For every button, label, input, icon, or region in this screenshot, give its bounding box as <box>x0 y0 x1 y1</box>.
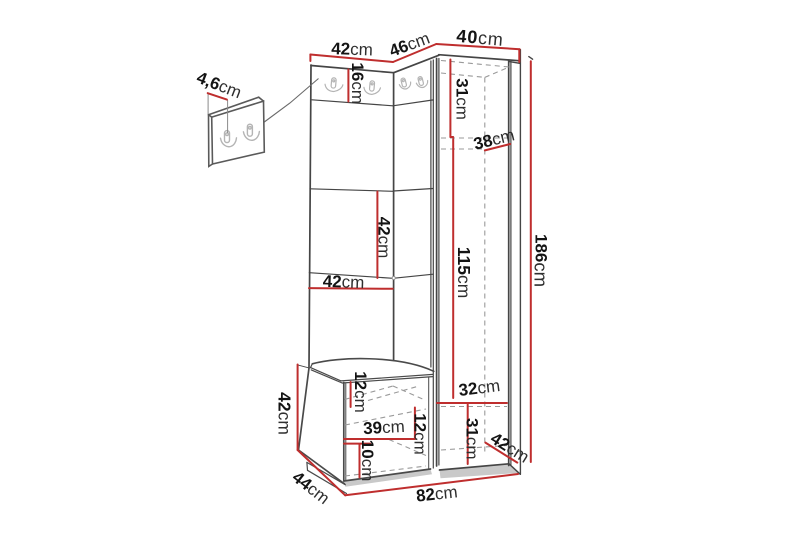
svg-text:115cm: 115cm <box>454 247 474 299</box>
svg-text:10cm: 10cm <box>357 440 376 482</box>
svg-text:12cm: 12cm <box>351 371 370 413</box>
svg-text:16cm: 16cm <box>348 62 367 104</box>
svg-text:42cm: 42cm <box>275 392 295 435</box>
svg-text:39cm: 39cm <box>363 417 406 438</box>
svg-text:186cm: 186cm <box>530 234 551 287</box>
svg-text:42cm: 42cm <box>331 40 373 60</box>
svg-text:40cm: 40cm <box>456 26 505 50</box>
svg-text:42cm: 42cm <box>322 272 364 292</box>
svg-text:42cm: 42cm <box>374 217 393 259</box>
svg-text:31cm: 31cm <box>452 78 471 120</box>
svg-text:12cm: 12cm <box>410 413 429 455</box>
svg-text:31cm: 31cm <box>462 418 481 460</box>
